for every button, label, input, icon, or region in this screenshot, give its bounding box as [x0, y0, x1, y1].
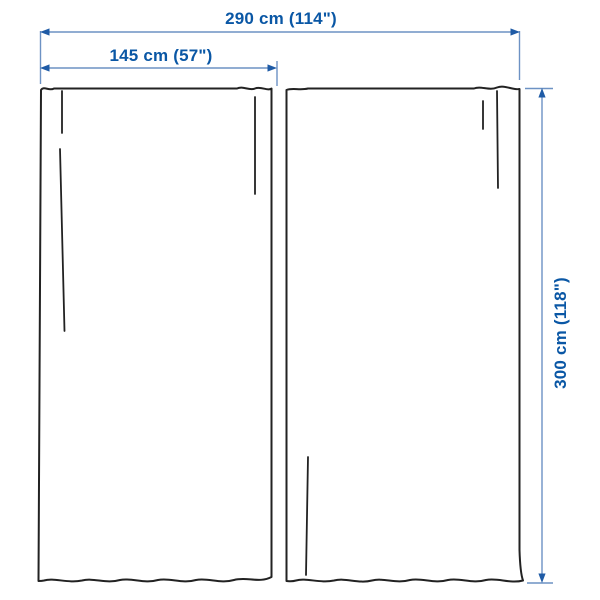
arrowhead-down-icon [538, 574, 545, 584]
right-curtain-panel [287, 87, 524, 582]
arrowhead-left-icon [40, 64, 50, 71]
left-panel-outline [39, 88, 272, 582]
diagram-linework [0, 0, 600, 600]
right-panel-fold-line-bottom [306, 457, 308, 575]
left-curtain-panel [39, 88, 272, 582]
arrowhead-up-icon [538, 88, 545, 98]
right-panel-outline [287, 87, 524, 582]
total-width-label: 290 cm (114") [225, 9, 337, 29]
arrowhead-left-icon [40, 28, 50, 35]
curtain-dimension-diagram: 290 cm (114") 145 cm (57") 300 cm (118") [0, 0, 600, 600]
arrowhead-right-icon [511, 28, 521, 35]
arrowhead-right-icon [268, 64, 278, 71]
panel-width-label: 145 cm (57") [109, 46, 212, 66]
height-label: 300 cm (118") [551, 277, 571, 389]
left-panel-fold-line-long [60, 149, 65, 331]
height-dimension [525, 88, 553, 583]
right-panel-fold-line-long [497, 91, 498, 188]
